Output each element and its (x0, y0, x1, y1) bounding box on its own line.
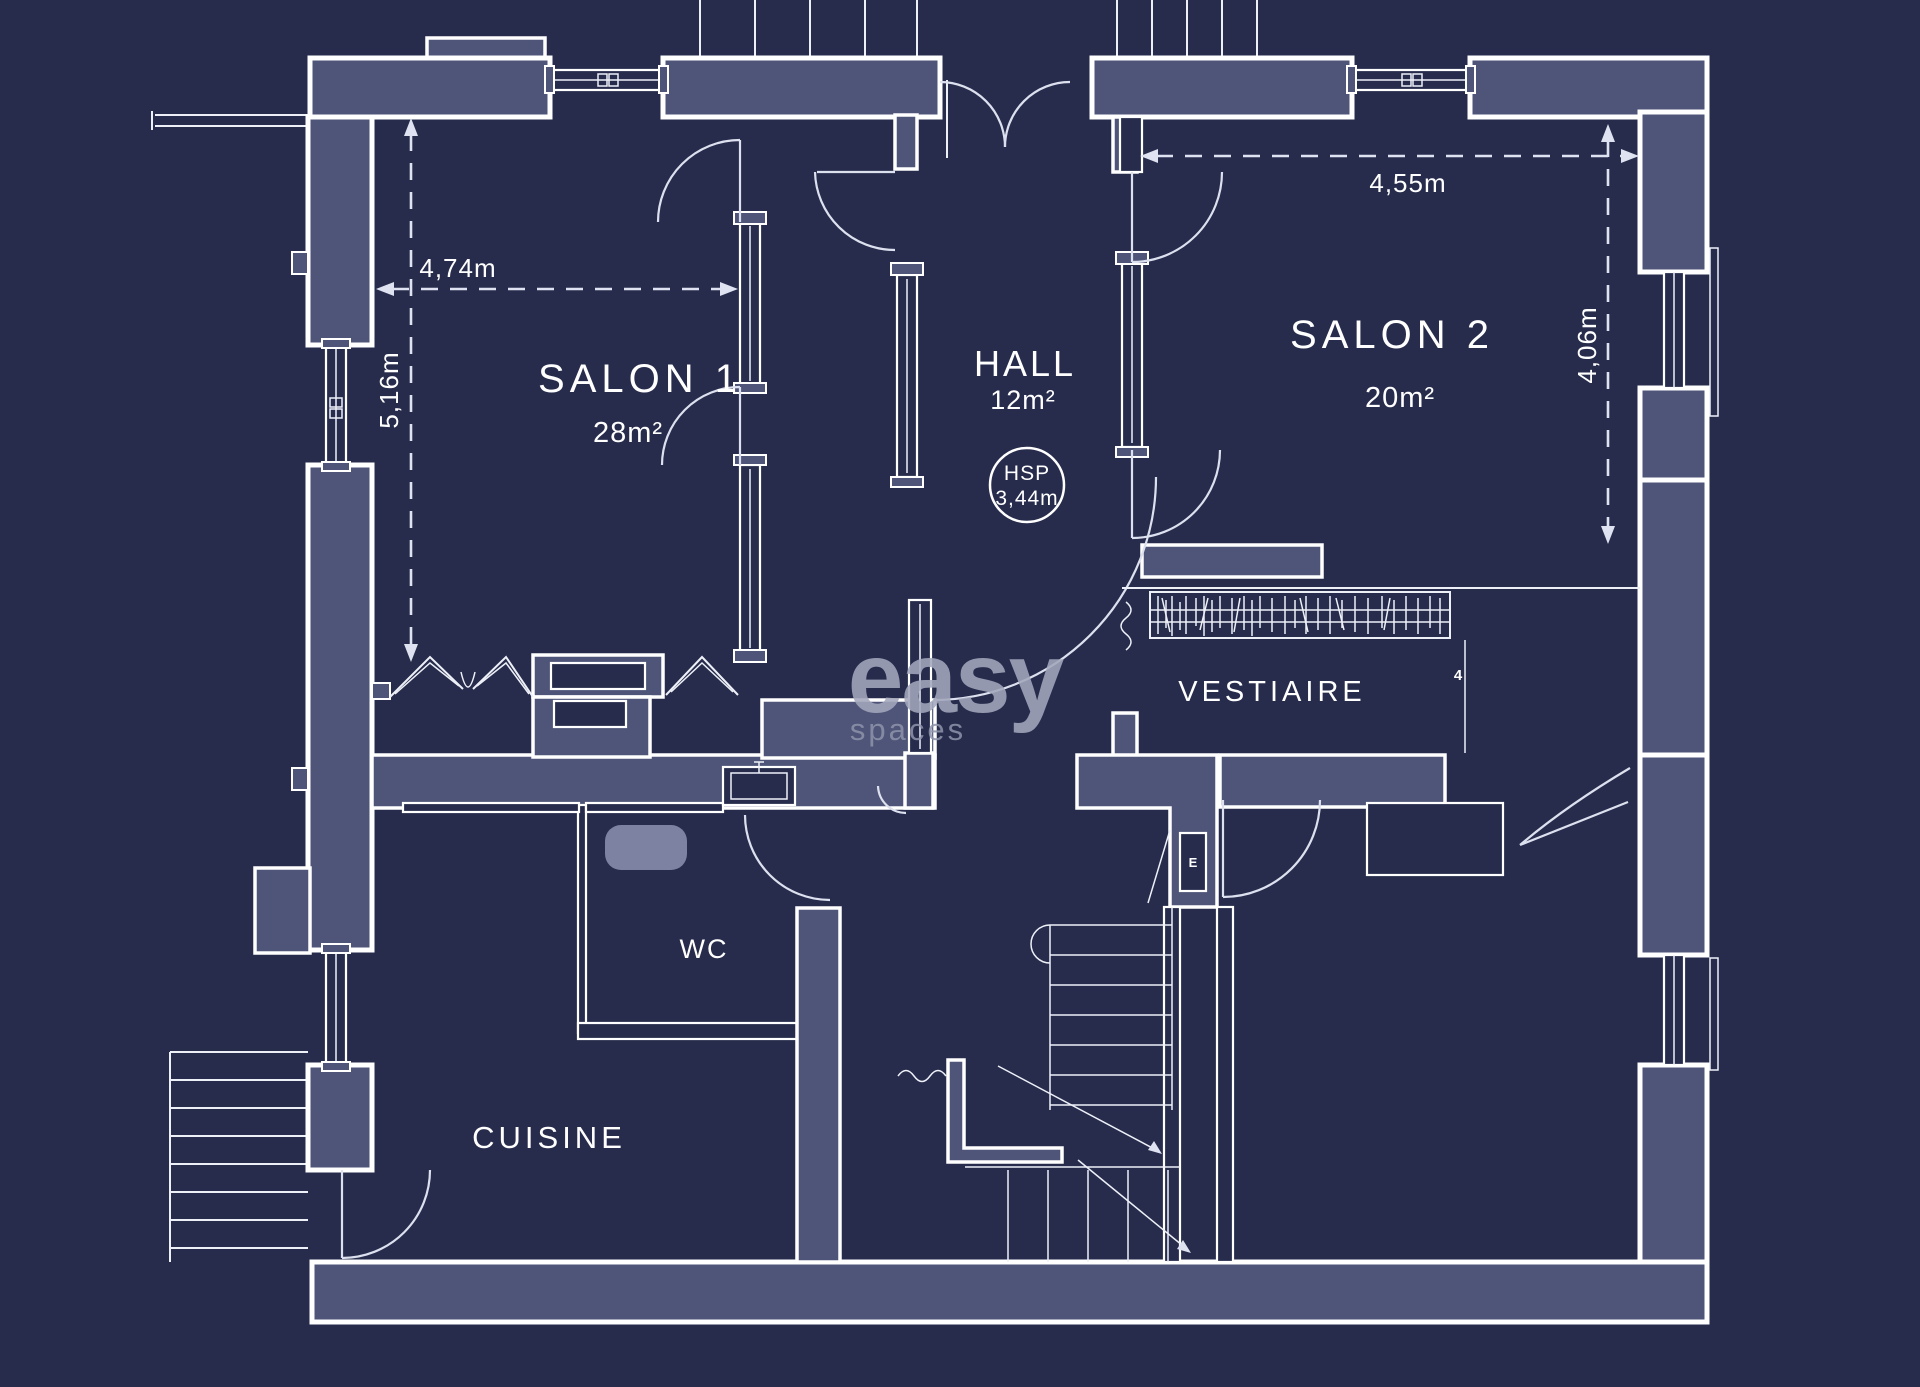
area-hall: 12m² (990, 385, 1056, 415)
wall-salon2-south (1142, 545, 1322, 577)
wall-cuisine-north (403, 803, 579, 812)
chimney-niche (1367, 803, 1503, 875)
wall-wc-east (797, 908, 840, 1262)
wc-sink (605, 825, 687, 870)
dim-label: 4,74m (419, 253, 496, 283)
floorplan-page: E 4 4,74m 5,16m (0, 0, 1920, 1387)
exterior-pillar (255, 868, 310, 953)
label-wc: WC (680, 934, 729, 964)
window-top-salon2 (1347, 66, 1475, 93)
wall-room-north (1220, 755, 1445, 807)
label-hall: HALL (974, 343, 1076, 384)
label-cuisine: CUISINE (472, 1120, 626, 1155)
dim-label: 4,06m (1572, 306, 1602, 383)
niche (554, 701, 626, 727)
hsp-value: 3,44m (995, 487, 1058, 510)
window-left-cuisine (322, 944, 350, 1071)
wall-band (372, 755, 935, 808)
area-salon2: 20m² (1365, 382, 1435, 414)
label-vestiaire: VESTIAIRE (1178, 676, 1366, 708)
dim-label: 5,16m (374, 351, 404, 428)
window-left-salon1 (322, 339, 350, 471)
dim-label: 4,55m (1369, 168, 1446, 198)
electrical-panel-label: E (1189, 855, 1198, 870)
watermark: easy spaces (848, 622, 1065, 747)
window-top-salon1 (545, 66, 668, 93)
label-salon1: SALON 1 (538, 357, 742, 401)
closet-dimension-mark: 4 (1454, 667, 1463, 684)
wall-wc-south (578, 1023, 798, 1039)
floorplan-svg: E 4 4,74m 5,16m (0, 0, 1920, 1387)
area-salon1: 28m² (593, 417, 663, 449)
wall-bottom-slab (312, 1262, 1707, 1322)
watermark-sub: spaces (850, 712, 966, 747)
label-salon2: SALON 2 (1290, 313, 1494, 357)
hsp-label: HSP (1004, 462, 1050, 485)
wc-toilet (723, 762, 795, 805)
